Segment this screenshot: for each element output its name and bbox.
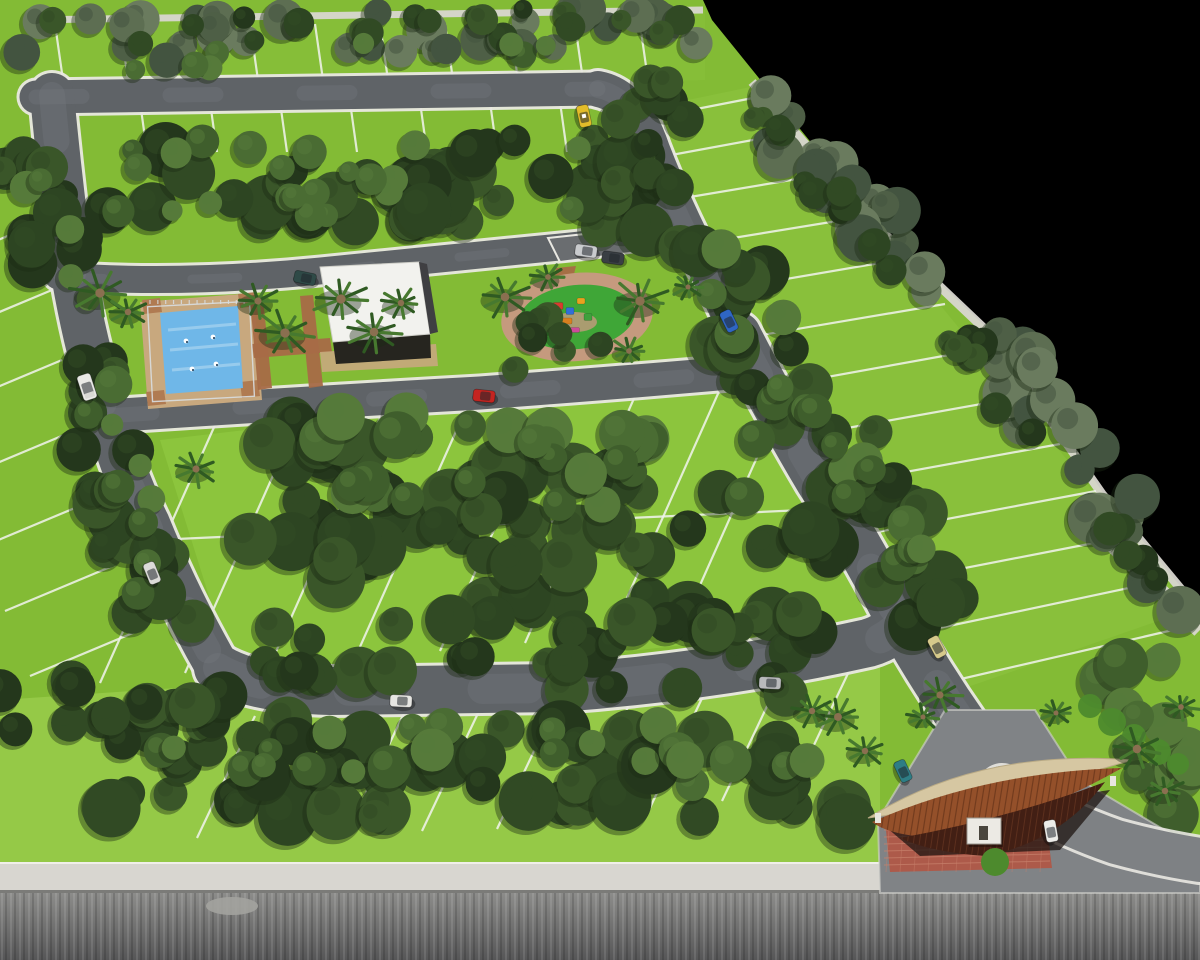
- tree-highlight: [341, 164, 350, 173]
- vehicle-cabin: [1046, 826, 1056, 838]
- tree-highlight: [561, 620, 575, 634]
- tree-highlight: [164, 203, 173, 212]
- tree-highlight: [609, 717, 633, 741]
- tree-highlight: [635, 582, 652, 599]
- tree-highlight: [458, 414, 472, 428]
- tree-highlight: [43, 10, 55, 22]
- play-equipment: [577, 298, 585, 304]
- tree-highlight: [770, 304, 786, 320]
- tree-highlight: [892, 510, 909, 527]
- tree-highlight: [114, 12, 130, 28]
- tree-highlight: [497, 544, 521, 568]
- tree-highlight: [543, 742, 556, 755]
- tree-highlight: [613, 603, 635, 625]
- tree-highlight: [685, 802, 702, 819]
- gate-bush: [1098, 708, 1126, 736]
- tree-highlight: [607, 449, 623, 465]
- palm-crown: [834, 713, 842, 721]
- tree-highlight: [559, 16, 572, 29]
- tree-highlight: [669, 9, 683, 23]
- tree-highlight: [287, 12, 301, 26]
- tree-highlight: [260, 612, 278, 630]
- tree-highlight: [972, 331, 985, 344]
- site-plan-canvas: [0, 0, 1200, 960]
- tree-highlight: [185, 55, 197, 67]
- tree-highlight: [340, 471, 355, 486]
- tree-highlight: [383, 611, 398, 626]
- tree-highlight: [296, 756, 311, 771]
- tree-highlight: [219, 184, 236, 201]
- tree-highlight: [522, 428, 537, 443]
- tree-highlight: [261, 741, 272, 752]
- tree-highlight: [125, 142, 134, 151]
- pool-deck-brick: [240, 380, 260, 398]
- tree-highlight: [1022, 352, 1041, 371]
- tree-highlight: [14, 227, 35, 248]
- tree-highlight: [128, 62, 137, 71]
- tree-highlight: [1074, 500, 1096, 522]
- tree-highlight: [460, 642, 478, 660]
- tree-highlight: [1097, 516, 1112, 531]
- tree-highlight: [730, 482, 748, 500]
- tree-highlight: [62, 267, 73, 278]
- tree-highlight: [60, 672, 78, 690]
- tree-highlight: [543, 721, 555, 733]
- tree-highlight: [674, 515, 690, 531]
- gate-bush: [1167, 753, 1189, 775]
- tree-highlight: [534, 159, 554, 179]
- tree-highlight: [697, 613, 717, 633]
- tree-highlight: [39, 194, 61, 216]
- tree-highlight: [909, 256, 928, 275]
- tree-highlight: [230, 519, 254, 543]
- tree-highlight: [492, 413, 513, 434]
- tree-highlight: [516, 2, 525, 11]
- tree-highlight: [59, 219, 72, 232]
- tree-highlight: [190, 129, 205, 144]
- tree-highlight: [794, 747, 810, 763]
- main-road-texture: [0, 893, 1200, 960]
- tree-highlight: [782, 597, 803, 618]
- tree-highlight: [614, 12, 623, 21]
- tree-highlight: [317, 720, 332, 735]
- palm-crown: [370, 328, 379, 337]
- tree-highlight: [208, 44, 219, 55]
- swimmer-shadow: [216, 364, 218, 366]
- palm-crown: [501, 293, 510, 302]
- tree-highlight: [297, 139, 312, 154]
- tree-highlight: [875, 194, 887, 206]
- palm-crown: [336, 294, 345, 303]
- palm-crown: [626, 348, 632, 354]
- tree-highlight: [911, 538, 924, 551]
- tree-highlight: [356, 36, 365, 45]
- palm-crown: [254, 297, 261, 304]
- tree-highlight: [435, 38, 449, 52]
- tree-highlight: [637, 162, 651, 176]
- tree-highlight: [127, 157, 139, 169]
- tree-highlight: [1117, 544, 1130, 557]
- tree-highlight: [984, 396, 998, 410]
- palm-crown: [545, 274, 551, 280]
- tree-highlight: [389, 39, 404, 54]
- tree-highlight: [644, 712, 661, 729]
- gate-bush: [1078, 694, 1102, 718]
- palm-crown: [192, 465, 199, 472]
- booth-door: [979, 826, 988, 840]
- tree-highlight: [522, 327, 535, 340]
- vehicle-cabin: [582, 246, 594, 256]
- tree-highlight: [538, 38, 547, 47]
- tree-highlight: [132, 511, 145, 524]
- tree-highlight: [340, 653, 363, 676]
- tree-highlight: [404, 134, 417, 147]
- vehicle-cabin: [609, 253, 621, 263]
- taxi-roof-sign: [582, 114, 587, 119]
- tree-highlight: [862, 232, 877, 247]
- tree-highlight: [667, 673, 685, 691]
- tree-highlight: [476, 601, 496, 621]
- tree-highlight: [638, 133, 651, 146]
- tree-highlight: [344, 762, 355, 773]
- tree-highlight: [655, 70, 669, 84]
- palm-crown: [95, 288, 104, 297]
- tree-highlight: [802, 181, 816, 195]
- tree-highlight: [751, 530, 771, 550]
- tree-highlight: [792, 369, 813, 390]
- tree-highlight: [700, 283, 714, 297]
- tree-highlight: [431, 601, 454, 624]
- tree-highlight: [861, 459, 874, 472]
- tree-highlight: [285, 656, 302, 673]
- tree-highlight: [285, 187, 296, 198]
- gate-pillar: [1110, 776, 1116, 786]
- tree-highlight: [96, 702, 114, 720]
- tree-highlight: [250, 424, 274, 448]
- tree-highlight: [105, 474, 120, 489]
- tree-highlight: [165, 739, 176, 750]
- tree-highlight: [802, 398, 818, 414]
- tree-highlight: [606, 104, 624, 122]
- tree-highlight: [830, 180, 844, 194]
- tree-highlight: [948, 338, 960, 350]
- tree-highlight: [232, 755, 248, 771]
- tree-highlight: [374, 652, 396, 674]
- tree-highlight: [254, 650, 268, 664]
- tree-highlight: [314, 789, 340, 815]
- tree-highlight: [635, 751, 648, 764]
- road-paint-patch: [206, 897, 258, 915]
- palm-crown: [280, 328, 289, 337]
- tree-highlight: [323, 399, 345, 421]
- tree-highlight: [106, 199, 121, 214]
- tree-highlight: [319, 542, 339, 562]
- tree-highlight: [131, 457, 141, 467]
- tree-highlight: [591, 335, 602, 346]
- tree-highlight: [359, 167, 373, 181]
- tree-highlight: [466, 498, 485, 517]
- tree-highlight: [305, 182, 318, 195]
- tree-highlight: [825, 435, 837, 447]
- tree-highlight: [345, 717, 369, 741]
- swimmer-shadow: [192, 369, 194, 371]
- tree-highlight: [801, 154, 819, 172]
- tree-highlight: [134, 188, 156, 210]
- tree-highlight: [406, 7, 417, 18]
- tree-highlight: [298, 627, 312, 641]
- tree-highlight: [131, 34, 142, 45]
- tree-highlight: [769, 118, 781, 130]
- tree-highlight: [652, 24, 663, 35]
- tree-highlight: [471, 8, 485, 22]
- tree-highlight: [703, 475, 723, 495]
- tree-highlight: [1057, 408, 1078, 429]
- tree-highlight: [518, 314, 528, 324]
- tree-highlight: [236, 9, 246, 19]
- tree-highlight: [56, 709, 73, 726]
- tree-highlight: [671, 746, 688, 763]
- tree-highlight: [715, 746, 734, 765]
- median-bush: [981, 848, 1009, 876]
- palm-crown: [920, 714, 925, 719]
- tree-highlight: [756, 80, 774, 98]
- tree-highlight: [470, 771, 486, 787]
- tree-highlight: [739, 374, 755, 390]
- tree-highlight: [836, 484, 851, 499]
- tree-highlight: [430, 713, 447, 730]
- tree-highlight: [502, 35, 513, 46]
- master-plan-render: [0, 0, 1200, 960]
- tree-highlight: [1103, 644, 1126, 667]
- tree-highlight: [373, 751, 392, 770]
- tree-highlight: [570, 139, 581, 150]
- tree-highlight: [546, 542, 572, 568]
- tree-highlight: [99, 370, 116, 387]
- tree-highlight: [605, 170, 621, 186]
- tree-highlight: [503, 129, 517, 143]
- tree-highlight: [141, 489, 153, 501]
- tree-highlight: [203, 16, 217, 30]
- tree-highlight: [131, 689, 147, 705]
- tree-highlight: [367, 2, 379, 14]
- tree-highlight: [89, 786, 115, 812]
- palm-crown: [936, 691, 943, 698]
- tree-highlight: [416, 734, 435, 753]
- tree-highlight: [31, 151, 50, 170]
- tree-highlight: [661, 173, 678, 190]
- tree-highlight: [554, 648, 572, 666]
- tree-highlight: [117, 435, 136, 454]
- gate-pillar: [875, 813, 881, 823]
- tree-highlight: [863, 419, 878, 434]
- tree-highlight: [429, 476, 455, 502]
- tree-highlight: [404, 190, 429, 215]
- tree-highlight: [492, 715, 509, 732]
- palm-crown: [1162, 788, 1168, 794]
- palm-crown: [1133, 745, 1142, 754]
- tree-highlight: [1147, 570, 1158, 581]
- tree-highlight: [95, 533, 108, 546]
- tree-highlight: [62, 433, 82, 453]
- tree-highlight: [626, 210, 650, 234]
- tree-highlight: [154, 47, 170, 63]
- tree-highlight: [770, 378, 782, 390]
- vehicle-cabin: [766, 678, 777, 687]
- tree-highlight: [363, 804, 378, 819]
- tree-highlight: [359, 22, 372, 35]
- tree-highlight: [506, 779, 533, 806]
- tree-highlight: [1150, 647, 1166, 663]
- tree-highlight: [402, 717, 414, 729]
- tree-highlight: [104, 416, 114, 426]
- swimmer-shadow: [186, 341, 188, 343]
- palm-crown: [398, 300, 404, 306]
- tree-highlight: [185, 17, 195, 27]
- tree-highlight: [379, 417, 401, 439]
- play-equipment: [584, 314, 592, 321]
- palm-crown: [125, 309, 131, 315]
- tree-highlight: [547, 492, 562, 507]
- tree-highlight: [175, 688, 196, 709]
- tree-highlight: [552, 325, 563, 336]
- tree-highlight: [456, 135, 478, 157]
- tree-highlight: [395, 486, 410, 501]
- tree-highlight: [420, 12, 431, 23]
- tree-highlight: [3, 717, 18, 732]
- tree-highlight: [1162, 592, 1184, 614]
- tree-highlight: [202, 194, 213, 205]
- tree-highlight: [505, 360, 517, 372]
- tree-highlight: [240, 725, 255, 740]
- palm-crown: [809, 708, 815, 714]
- palm-crown: [635, 296, 644, 305]
- palm-crown: [1053, 710, 1058, 715]
- tree-highlight: [789, 509, 815, 535]
- tree-highlight: [79, 7, 93, 21]
- tree-highlight: [32, 171, 43, 182]
- pool-deck-brick: [146, 390, 166, 406]
- tree-highlight: [746, 110, 755, 119]
- tree-highlight: [600, 675, 614, 689]
- tree-highlight: [563, 200, 574, 211]
- tree-highlight: [238, 135, 253, 150]
- tree-highlight: [742, 425, 759, 442]
- vehicle-cabin: [480, 391, 491, 401]
- tree-highlight: [255, 756, 266, 767]
- tree-highlight: [126, 581, 141, 596]
- tree-highlight: [1120, 479, 1141, 500]
- tree-highlight: [826, 800, 851, 825]
- tree-highlight: [624, 537, 640, 553]
- tree-highlight: [562, 769, 580, 787]
- palm-crown: [1178, 704, 1184, 710]
- tree-highlight: [1127, 764, 1141, 778]
- tree-highlight: [68, 349, 86, 367]
- tree-highlight: [78, 404, 91, 417]
- tree-highlight: [605, 416, 626, 437]
- tree-highlight: [603, 140, 628, 165]
- tree-highlight: [165, 141, 179, 155]
- tree-highlight: [706, 234, 724, 252]
- tree-highlight: [425, 511, 442, 528]
- play-equipment: [566, 308, 574, 315]
- tree-highlight: [247, 33, 256, 42]
- tree-highlight: [465, 739, 486, 760]
- vehicle-cabin: [397, 696, 408, 705]
- tree-highlight: [8, 39, 25, 56]
- tree-highlight: [284, 407, 301, 424]
- tree-highlight: [458, 470, 472, 484]
- tree-highlight: [1022, 422, 1034, 434]
- tree-highlight: [1068, 458, 1082, 472]
- tree-highlight: [1126, 705, 1140, 719]
- tree-highlight: [273, 158, 284, 169]
- tree-highlight: [276, 723, 298, 745]
- palm-crown: [862, 748, 868, 754]
- swimmer-shadow: [213, 337, 215, 339]
- tree-highlight: [582, 733, 594, 745]
- palm-crown: [685, 284, 690, 289]
- tree-highlight: [570, 458, 589, 477]
- tree-highlight: [471, 541, 488, 558]
- tree-highlight: [923, 584, 945, 606]
